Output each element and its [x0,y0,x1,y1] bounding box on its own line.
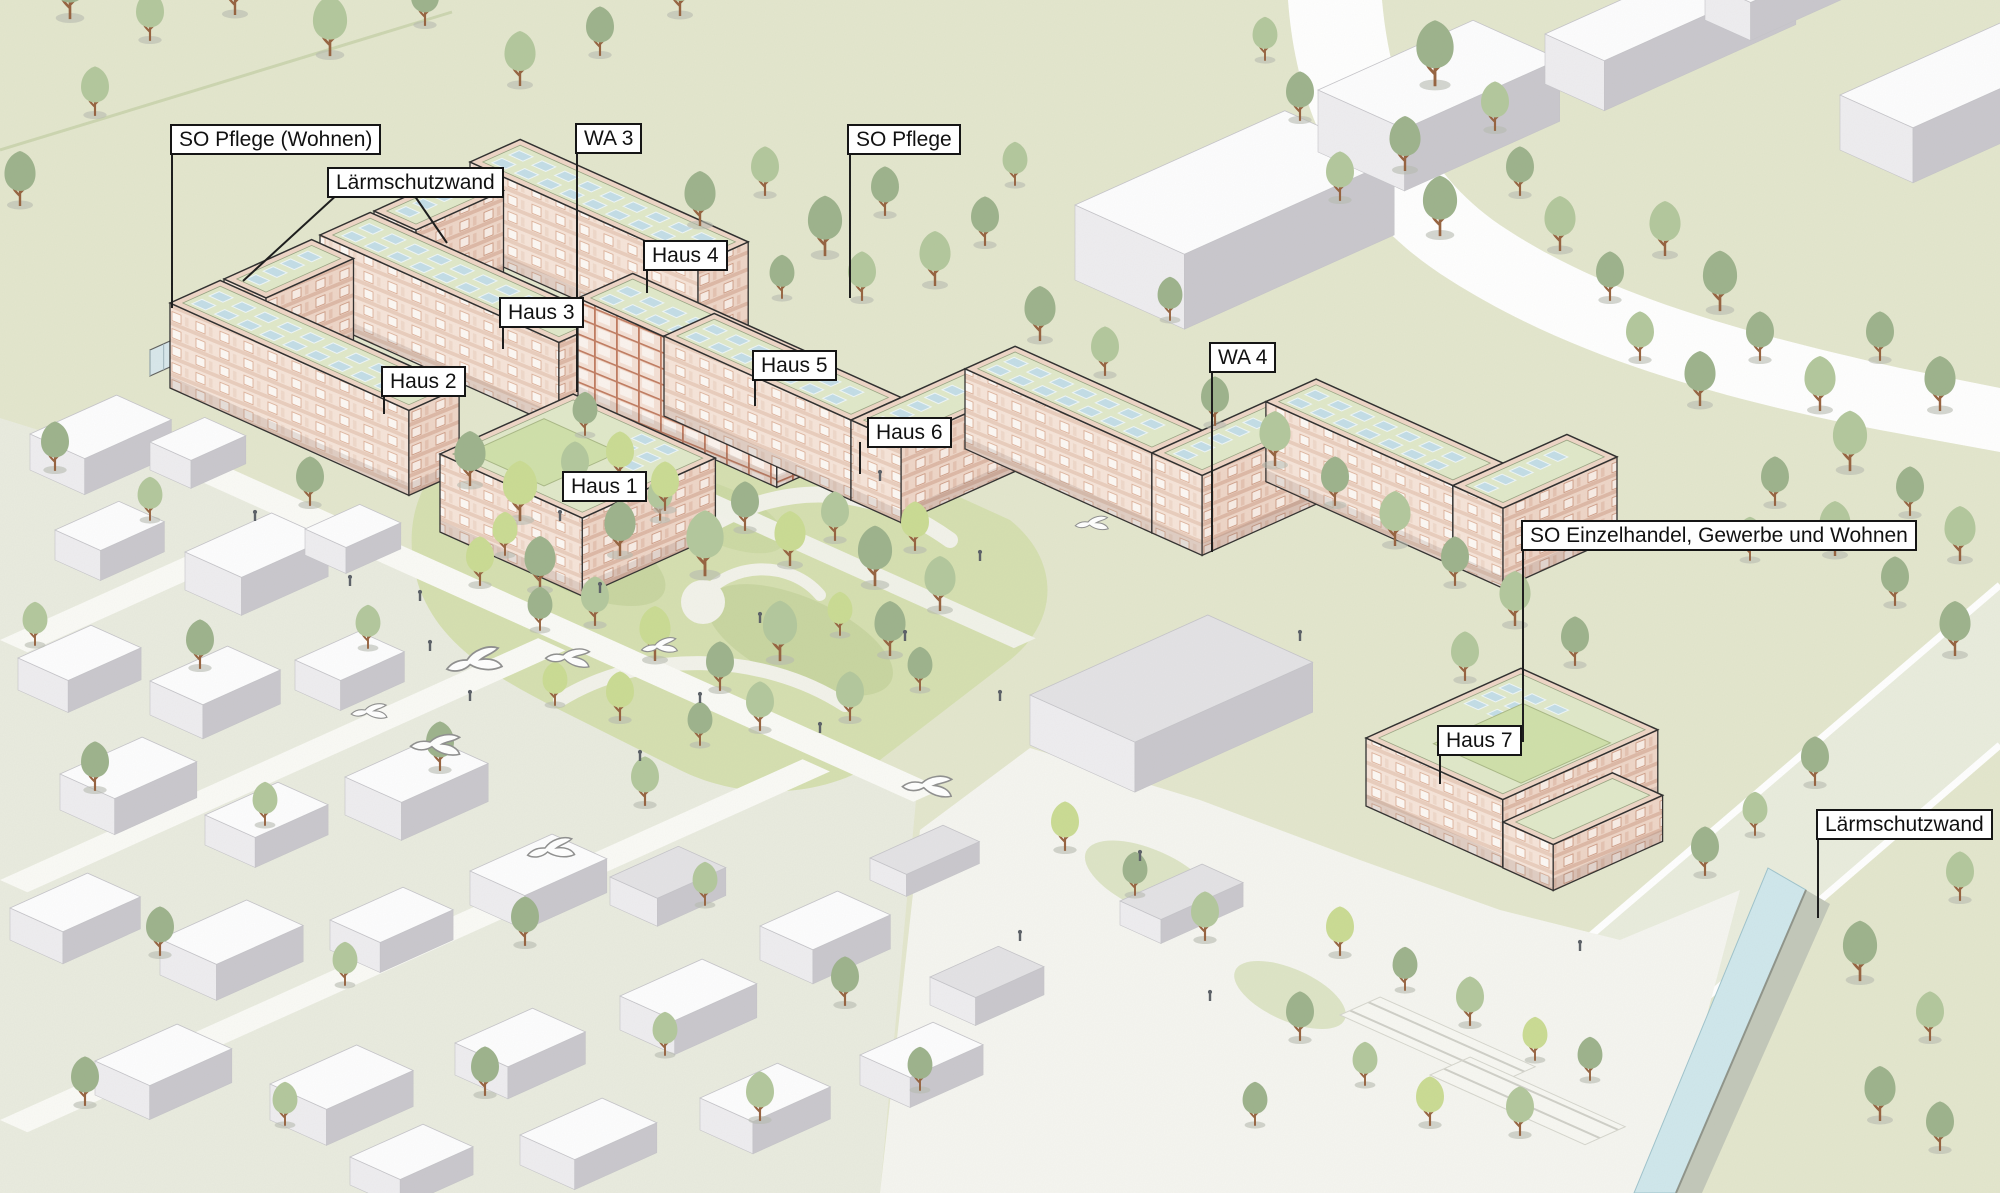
site-plan: SO Pflege (Wohnen) Lärmschutzwand WA 3 S… [0,0,2000,1193]
building-label-haus-3: Haus 3 [499,297,584,328]
zone-label-wa-4: WA 4 [1209,342,1276,373]
building-label-haus-2: Haus 2 [381,366,466,397]
site-plan-illustration [0,0,2000,1193]
annotation-label-laermschutzwand-left: Lärmschutzwand [327,167,504,198]
zone-label-so-einzelhandel: SO Einzelhandel, Gewerbe und Wohnen [1521,520,1917,551]
paper-grain-overlay [0,0,2000,1193]
zone-label-so-pflege-wohnen: SO Pflege (Wohnen) [170,124,381,155]
zone-label-so-pflege: SO Pflege [847,124,961,155]
building-label-haus-7: Haus 7 [1437,725,1522,756]
building-label-haus-5: Haus 5 [752,350,837,381]
building-label-haus-6: Haus 6 [867,417,952,448]
annotation-label-laermschutzwand-right: Lärmschutzwand [1816,809,1993,840]
zone-label-wa-3: WA 3 [575,123,642,154]
building-label-haus-1: Haus 1 [562,471,647,502]
building-label-haus-4: Haus 4 [643,240,728,271]
